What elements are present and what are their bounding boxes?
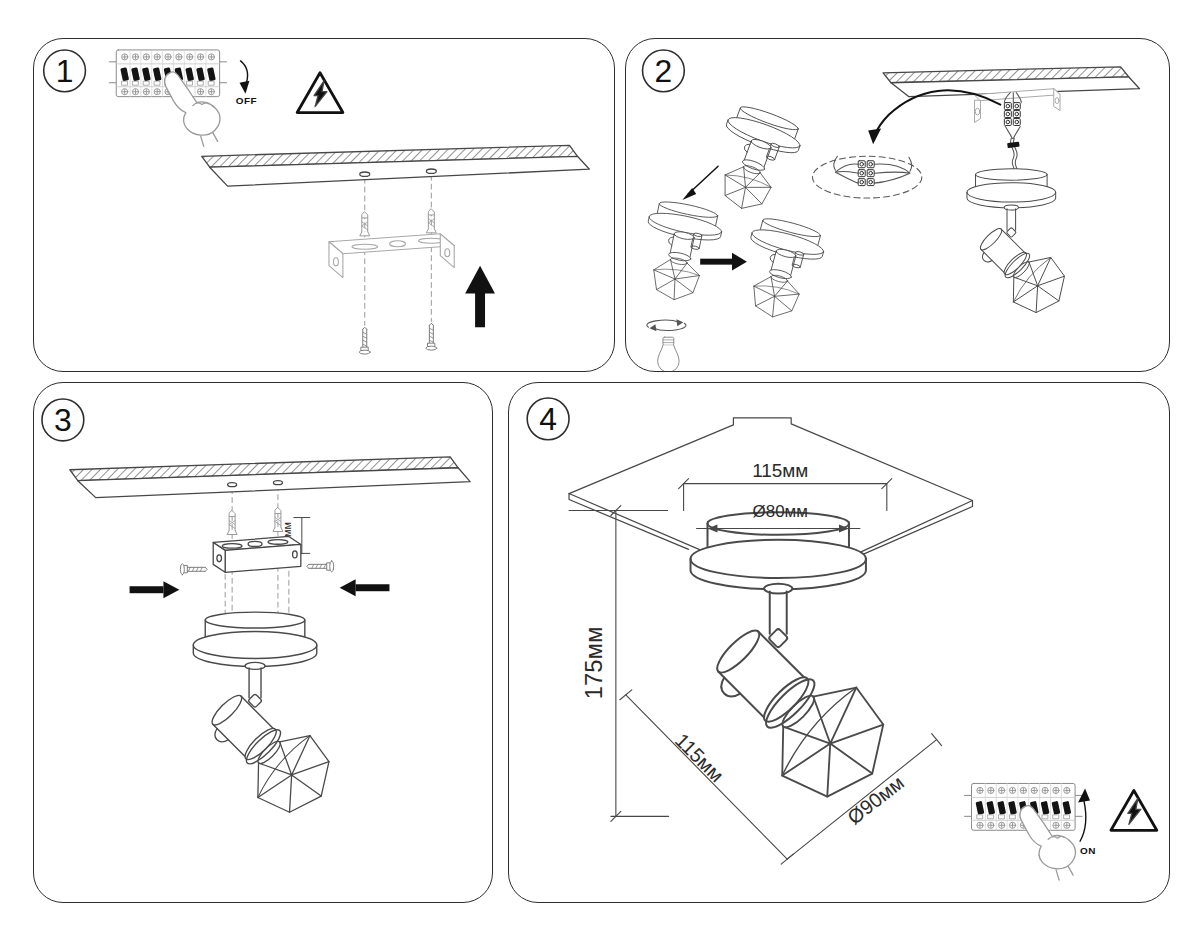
push-up-arrow [465, 266, 495, 328]
switch-direction-arrow [1080, 801, 1086, 841]
step-1-illustration: 1 OFF [34, 39, 614, 371]
cable-tie [1007, 142, 1020, 149]
drill-hole [426, 169, 436, 173]
step-3-panel: 3 15мм [33, 382, 493, 903]
drill-hole [273, 481, 282, 485]
mounting-width-label: 115мм [752, 460, 808, 481]
drill-hole [360, 172, 370, 176]
ceiling-plank [70, 457, 470, 498]
step-2-panel: 2 [625, 38, 1170, 372]
push-in-arrow-right [340, 579, 390, 596]
mounting-bracket [213, 536, 301, 572]
switch-direction-arrow [241, 61, 248, 83]
step-number: 3 [54, 402, 72, 438]
instruction-sheet: 1 OFF [0, 0, 1200, 933]
next-step-arrow [700, 253, 747, 271]
power-off-label: OFF [236, 95, 257, 106]
shade-diameter-label: Ø90мм [843, 771, 908, 828]
detail-callout-arrow [875, 90, 1000, 134]
fixture-height-label: 175мм [580, 627, 607, 700]
push-in-arrow-left [130, 581, 180, 598]
wire-connection-detail [813, 156, 922, 198]
step-4-panel: 4 115мм [508, 382, 1170, 903]
canopy-diameter-label: Ø80мм [753, 502, 808, 521]
step-2-illustration: 2 [626, 39, 1169, 371]
fixture-projection-label: 115мм [671, 729, 728, 786]
step-3-illustration: 3 15мм [34, 383, 492, 902]
mounting-bracket [329, 234, 454, 278]
step-4-illustration: 4 115мм [509, 383, 1169, 902]
step-1-panel: 1 OFF [33, 38, 615, 372]
step-number: 1 [56, 53, 74, 89]
step-number: 4 [539, 401, 557, 437]
power-on-label: ON [1080, 845, 1096, 856]
drill-hole [228, 483, 237, 487]
step-number: 2 [655, 53, 673, 89]
ceiling-plank [202, 145, 590, 186]
